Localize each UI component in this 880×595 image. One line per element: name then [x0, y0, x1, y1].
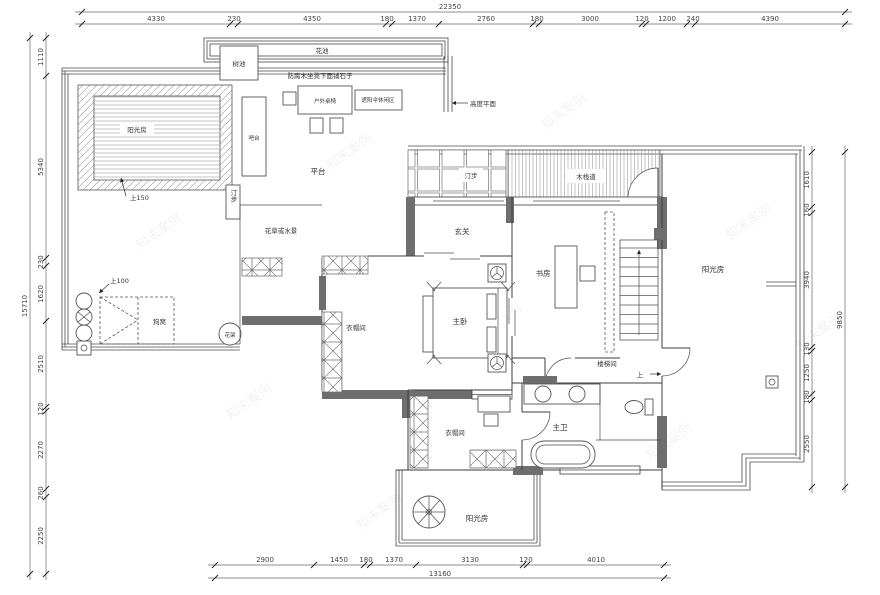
stepping-stones-label: 汀步	[229, 189, 237, 204]
dim: 260	[37, 486, 45, 499]
outdoor-table-label: 户外桌椅	[314, 97, 337, 105]
dim: 180	[380, 15, 393, 23]
stairwell-label: 楼梯间	[597, 359, 617, 368]
basin	[535, 386, 551, 402]
dim: 180	[530, 15, 543, 23]
toilet	[625, 401, 643, 414]
dim: 2550	[803, 435, 811, 453]
dim: 120	[519, 556, 532, 564]
dim: 1370	[385, 556, 403, 564]
dresser	[478, 396, 510, 412]
outdoor-chair	[310, 118, 323, 133]
dim: 3940	[803, 271, 811, 289]
dim: 230	[37, 255, 45, 268]
dim: 3000	[581, 15, 599, 23]
dim-top-total: 22350	[439, 3, 461, 11]
dim: 2760	[477, 15, 495, 23]
dim-right-total: 9850	[836, 311, 844, 329]
cloakroom1-label: 衣帽间	[346, 323, 366, 332]
cloakroom2-furniture	[478, 396, 510, 426]
bench-note-label: 防腐木坐凳下面铺石子	[288, 71, 354, 80]
dog-area: 狗窝 上100 花架	[76, 276, 241, 355]
dim: 160	[803, 203, 811, 216]
flower-water-label: 花草或水景	[265, 226, 298, 235]
tree-pool: 树池	[220, 46, 258, 80]
pillow	[487, 327, 496, 352]
toilet-tank	[645, 399, 653, 415]
dim: 1620	[37, 285, 45, 303]
stepping-stones-label: 汀步	[465, 172, 479, 180]
watermark-text: 知末案例	[353, 490, 405, 533]
floor-drain	[77, 341, 91, 355]
dim: 2250	[37, 527, 45, 545]
study-desk	[555, 246, 577, 308]
dim: 120	[635, 15, 648, 23]
height-note: 高度平面	[452, 99, 497, 108]
pillow	[487, 294, 496, 319]
sunroom-right-label: 阳光房	[702, 264, 725, 274]
dim: 4010	[587, 556, 605, 564]
watermark-text: 知末案例	[223, 380, 275, 423]
platform-label: 平台	[311, 166, 326, 176]
flower-rack-label: 花架	[224, 331, 236, 339]
flower-bed-label: 花池	[316, 46, 330, 55]
dim: 240	[686, 15, 699, 23]
planter-circle	[76, 293, 92, 309]
study-chair	[580, 266, 595, 281]
dim: 120	[37, 402, 45, 415]
dim-bottom-total: 13160	[429, 570, 451, 578]
dim: 4350	[303, 15, 321, 23]
dim: 2510	[37, 355, 45, 373]
dim: 5340	[37, 158, 45, 176]
outdoor-chair	[330, 118, 343, 133]
bookshelf	[605, 212, 614, 352]
dim: 1370	[408, 15, 426, 23]
sunroom-bottom-label: 阳光房	[466, 513, 489, 523]
staircase	[620, 240, 658, 340]
master-bath-label: 主卫	[553, 422, 568, 432]
bathroom-fixtures	[524, 384, 662, 468]
outdoor-furniture: 吧台 户外桌椅 遮阳伞休闲区 平台	[242, 86, 402, 176]
watermark-text: 知末案例	[133, 210, 185, 253]
dim: 2900	[256, 556, 274, 564]
up-100-note: 上100	[110, 276, 129, 285]
watermark-text: 知末案例	[643, 420, 695, 463]
basin	[569, 386, 585, 402]
planter-circle	[76, 325, 92, 341]
dim: 4330	[147, 15, 165, 23]
dim: 2270	[37, 441, 45, 459]
watermark-text: 知末案例	[723, 200, 775, 243]
dim: 4390	[761, 15, 779, 23]
sunroom-topleft: 阳光房 上150	[78, 85, 232, 202]
dim: 130	[803, 342, 811, 355]
dim: 1250	[803, 364, 811, 382]
floor-drain-right	[766, 376, 778, 388]
outdoor-chair	[283, 92, 296, 105]
up-150-note: 上150	[130, 193, 149, 202]
dim-left-total: 15710	[21, 295, 29, 317]
tree-pool-label: 树池	[233, 59, 247, 68]
dim: 1610	[803, 171, 811, 189]
dim: 180	[803, 390, 811, 403]
floor-plan-drawing: 知末案例 知末案例 知末案例 知末案例 知末案例 知末案例 知末案例 知末案例 …	[0, 0, 880, 595]
dim: 1450	[330, 556, 348, 564]
dim: 3130	[461, 556, 479, 564]
master-bedroom-furniture	[423, 264, 515, 372]
parasol-area-label: 遮阳伞休闲区	[361, 96, 395, 104]
watermark-text: 知末案例	[323, 130, 375, 173]
fan-symbol	[488, 264, 506, 282]
dim: 180	[359, 556, 372, 564]
floor-plan-canvas: 知末案例 知末案例 知末案例 知末案例 知末案例 知末案例 知末案例 知末案例 …	[0, 0, 880, 595]
dim: 1110	[37, 48, 45, 66]
paving-and-boardwalk: 汀步 木栈道	[408, 150, 660, 198]
stair-hall: 上	[637, 370, 661, 379]
height-note-label: 高度平面	[470, 99, 497, 108]
planter-boxes	[242, 258, 282, 276]
dog-house-label: 狗窝	[153, 317, 167, 326]
bed-bench	[423, 296, 434, 352]
fan-symbol	[488, 354, 506, 372]
stool	[484, 414, 498, 426]
dim: 230	[227, 15, 240, 23]
up-note: 上	[637, 370, 644, 379]
watermark-text: 知末案例	[538, 90, 590, 133]
study-label: 书房	[536, 268, 551, 278]
bar-label: 吧台	[248, 134, 260, 142]
entry-label: 玄关	[455, 226, 470, 236]
sunroom-topleft-label: 阳光房	[127, 125, 147, 134]
cloakroom2-label: 衣帽间	[445, 428, 465, 437]
boardwalk-label: 木栈道	[576, 172, 596, 181]
dim: 1200	[658, 15, 676, 23]
spiral-stair	[413, 496, 445, 528]
study-furniture	[555, 212, 614, 352]
master-bedroom-label: 主卧	[453, 316, 468, 326]
